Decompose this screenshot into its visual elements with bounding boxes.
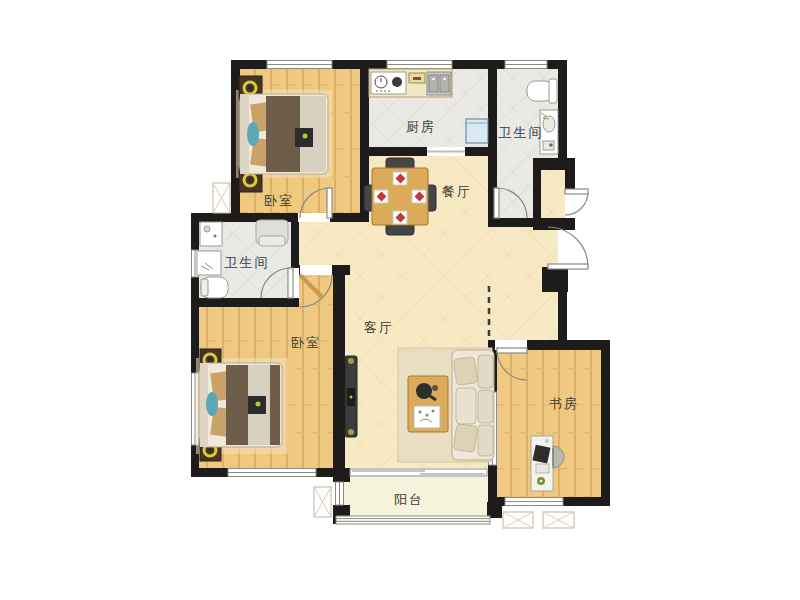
label-bedroom-top: 卧室 (264, 192, 294, 210)
label-living: 客厅 (364, 319, 394, 337)
ac-platform-bottom-right-1 (503, 512, 533, 528)
ac-platform-bottom-right-2 (543, 512, 574, 528)
toilet-icon (527, 79, 557, 103)
label-dining: 餐厅 (442, 183, 472, 201)
corridor-floor (299, 222, 345, 265)
bedroom-bottom-furniture (196, 349, 288, 461)
window-kitchen (387, 61, 452, 69)
label-bathroom-left: 卫生间 (225, 254, 270, 272)
label-study: 书房 (549, 395, 579, 413)
bed-icon (200, 363, 282, 447)
floor-plan-canvas (0, 0, 800, 600)
bedroom-top-furniture (236, 76, 332, 192)
dining-table-icon (372, 168, 428, 225)
fridge-icon (466, 119, 488, 143)
label-bathroom-top: 卫生间 (499, 124, 544, 142)
label-balcony: 阳台 (394, 491, 424, 509)
ac-platform-left-top (213, 183, 230, 213)
sofa-icon (452, 350, 494, 460)
bed-icon (240, 94, 328, 174)
window-bedroom-top (267, 61, 332, 69)
entry-door-upper (565, 189, 588, 215)
desk-icon (531, 436, 553, 491)
label-kitchen: 厨房 (406, 118, 436, 136)
coffee-table-icon (408, 376, 448, 432)
entry-alcove-floor (541, 170, 565, 218)
range-hood-icon (409, 73, 425, 83)
washing-machine-icon (200, 222, 222, 246)
shower-shelf-icon (256, 220, 288, 246)
balcony-sliding-door (350, 469, 487, 476)
toilet-icon (201, 277, 228, 298)
window-bathroom-top (505, 61, 547, 69)
window-balcony-left (336, 482, 344, 505)
sink-icon (427, 72, 451, 95)
dining-set (364, 158, 436, 235)
window-bedroom-bottom (228, 469, 316, 477)
floor-plan-page: 卧室 厨房 卫生间 餐厅 卫生间 卧室 客厅 书房 阳台 (0, 0, 800, 600)
window-study-bottom (505, 498, 563, 506)
ac-platform-left-bottom (314, 487, 331, 517)
tv-cabinet-icon (345, 356, 357, 437)
window-balcony-bottom (336, 516, 490, 524)
bathroom-counter-icon (197, 251, 221, 275)
label-bedroom-bottom: 卧室 (291, 334, 321, 352)
living-furniture (398, 348, 494, 462)
stove-icon (371, 72, 406, 94)
